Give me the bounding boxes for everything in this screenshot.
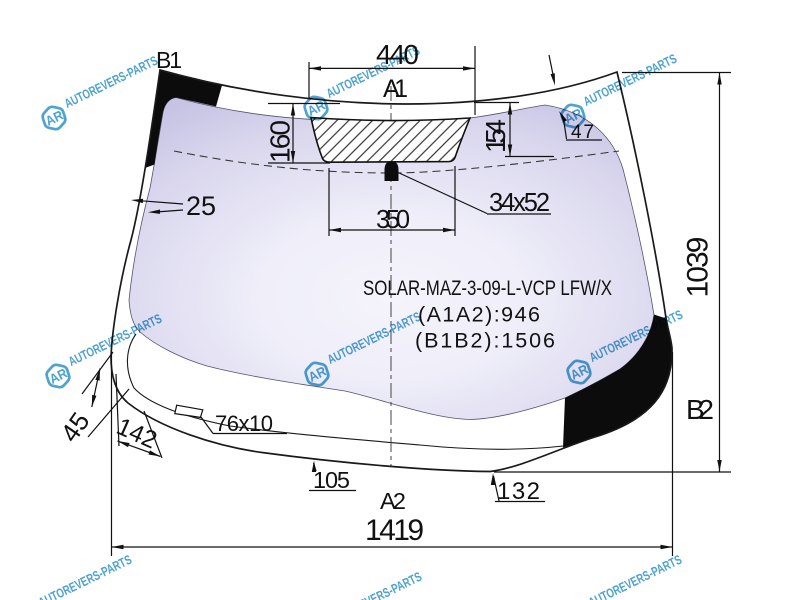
svg-text:132: 132 <box>497 478 540 505</box>
svg-text:45: 45 <box>54 407 95 448</box>
svg-text:154: 154 <box>480 119 511 153</box>
svg-text:B1: B1 <box>156 47 182 73</box>
svg-text:B2: B2 <box>686 394 714 425</box>
svg-text:105: 105 <box>313 467 350 493</box>
svg-text:350: 350 <box>376 206 410 234</box>
svg-text:SOLAR-MAZ-3-09-L-VCP LFW/X: SOLAR-MAZ-3-09-L-VCP LFW/X <box>363 277 612 300</box>
svg-text:(A1A2):946: (A1A2):946 <box>418 303 540 327</box>
svg-text:AUTOREVERS-PARTS: AUTOREVERS-PARTS <box>62 53 160 111</box>
svg-text:1039: 1039 <box>682 237 715 298</box>
svg-text:160: 160 <box>265 120 296 163</box>
svg-text:(B1B2):1506: (B1B2):1506 <box>415 329 555 353</box>
svg-text:47: 47 <box>571 122 594 143</box>
svg-text:A2: A2 <box>380 488 406 514</box>
svg-text:76x10: 76x10 <box>215 411 273 436</box>
svg-text:A1: A1 <box>383 75 408 103</box>
svg-text:25: 25 <box>186 191 216 221</box>
svg-text:1419: 1419 <box>365 514 424 547</box>
svg-text:34x52: 34x52 <box>489 189 550 217</box>
